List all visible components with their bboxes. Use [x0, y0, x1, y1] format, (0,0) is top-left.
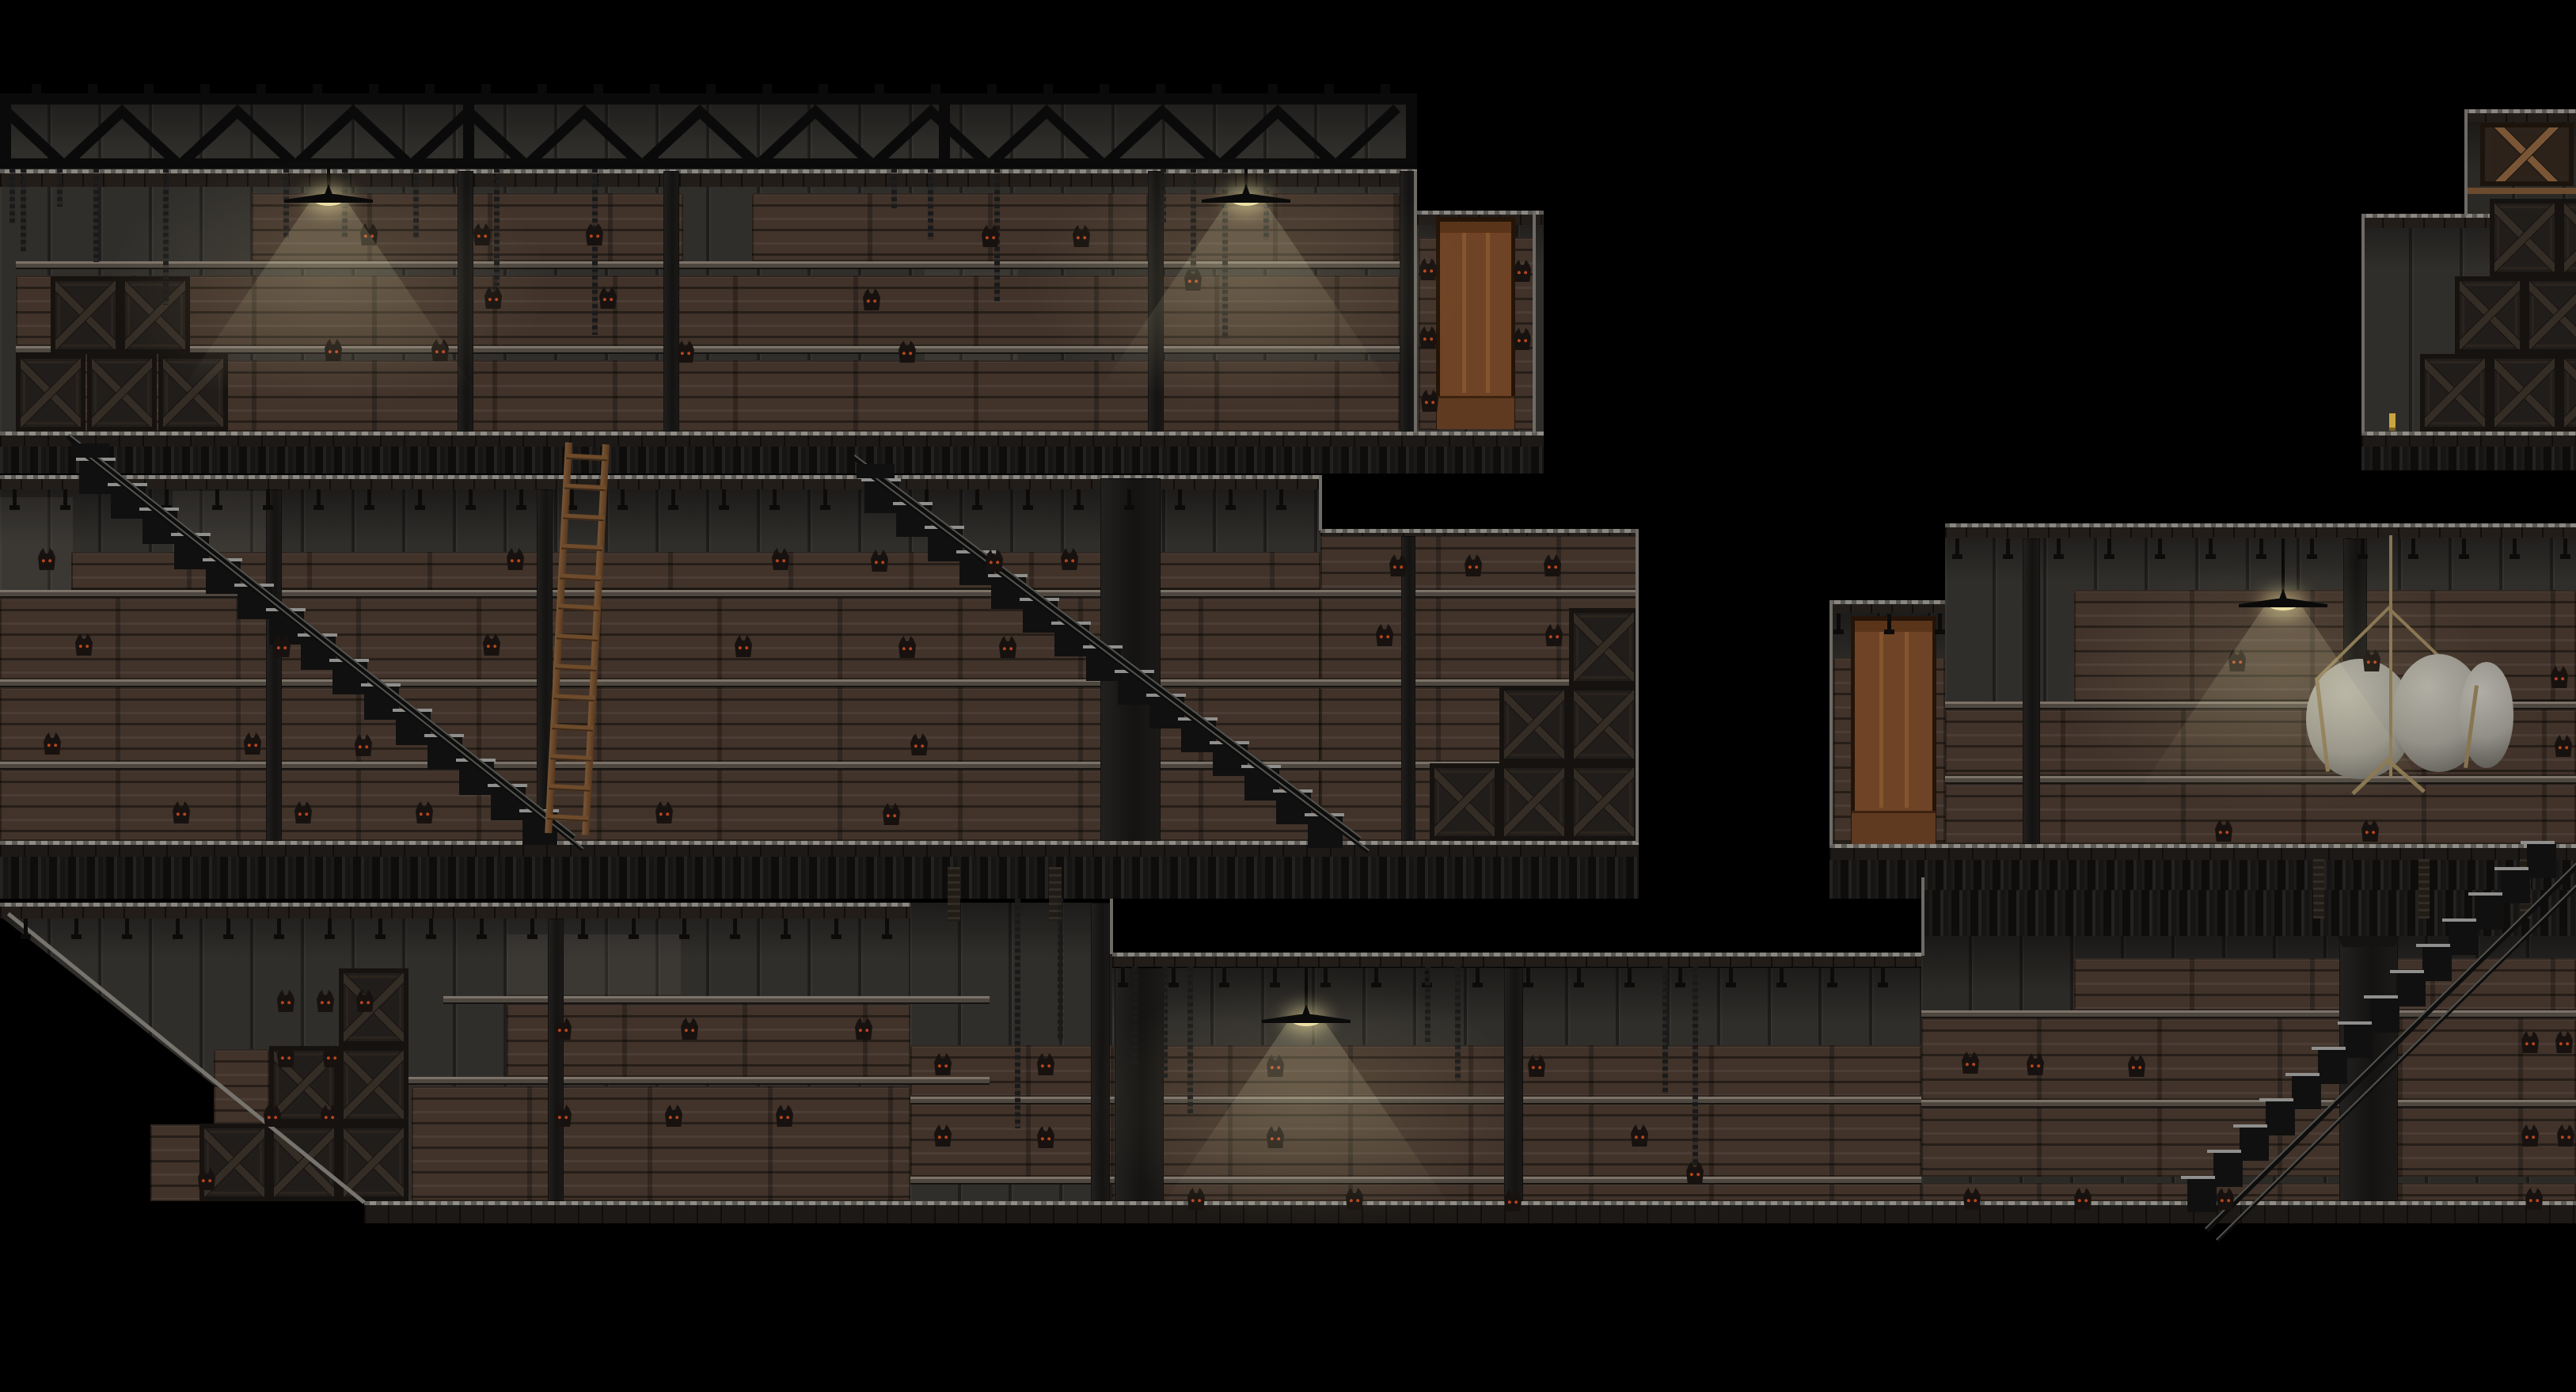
hanging-hook-icon: [1830, 967, 1834, 987]
door-divider: [1905, 632, 1909, 808]
hanging-hook-icon: [1178, 489, 1182, 510]
lamp-cord: [1305, 967, 1308, 1007]
ladder-rung: [553, 694, 595, 702]
stair-tread: [2233, 1124, 2267, 1128]
hanging-hook-icon: [682, 918, 686, 939]
truss-tab: [875, 84, 884, 93]
hanging-hook-icon: [2462, 538, 2466, 559]
stair-tread: [2312, 1047, 2346, 1050]
floor-platform: [2361, 432, 2576, 447]
hanging-hook-icon: [834, 918, 838, 939]
building-edge-trim: [1636, 529, 1639, 842]
truss-post: [1406, 93, 1417, 169]
hanging-chain: [1058, 899, 1063, 1041]
hanging-hook-icon: [74, 918, 78, 939]
hanging-hook-icon: [24, 918, 28, 939]
truss-tab: [256, 84, 266, 93]
support-pillar: [266, 489, 282, 841]
stair-tread: [2468, 892, 2502, 896]
truss-tab: [1381, 84, 1390, 93]
ladder-rung: [555, 664, 596, 671]
hanging-hook-icon: [165, 489, 169, 510]
support-pillar: [663, 171, 679, 432]
ladder-rung: [550, 754, 591, 762]
crate-stack-row: [1921, 1018, 2576, 1100]
hanging-hook-icon: [176, 918, 180, 939]
stair-tread: [2364, 995, 2398, 998]
lamp-cord: [2282, 538, 2285, 591]
hanging-chain: [1015, 899, 1020, 1128]
hanging-hook-icon: [632, 918, 636, 939]
wooden-crate: [2490, 354, 2559, 432]
hanging-hook-icon: [784, 918, 788, 939]
floor-platform: [1829, 844, 2576, 860]
truss-tab: [819, 84, 828, 93]
truss-tab: [1043, 84, 1053, 93]
hanging-hook-icon: [226, 918, 230, 939]
hanging-hook-icon: [1938, 614, 1942, 634]
support-pillar: [2023, 538, 2040, 844]
hanging-chain: [592, 169, 598, 335]
stair-tread: [2416, 944, 2450, 947]
floor-fascia: [0, 857, 1639, 899]
hanging-hook-icon: [277, 918, 281, 939]
hanging-hook-icon: [2006, 538, 2010, 559]
wooden-crate: [2455, 276, 2525, 354]
hanging-chain: [928, 169, 933, 240]
hanging-hook-icon: [1229, 489, 1233, 510]
truss-tab: [1268, 84, 1278, 93]
hanging-hook-icon: [2158, 538, 2162, 559]
hanging-hook-icon: [215, 489, 219, 510]
stair-tread: [2207, 1150, 2241, 1153]
hanging-hook-icon: [1476, 967, 1480, 987]
hanger-tab: [948, 867, 960, 921]
hanger-tab: [2313, 859, 2324, 918]
stair-tread: [2259, 1098, 2293, 1101]
building-edge-trim: [2464, 109, 2468, 215]
hanging-hook-icon: [63, 489, 67, 510]
stair-tread: [2285, 1073, 2320, 1076]
stair-riser: [2449, 922, 2478, 956]
stair-riser: [2292, 1076, 2321, 1110]
truss-tab: [313, 84, 322, 93]
truss-tab: [144, 84, 154, 93]
floor-fascia: [2361, 447, 2576, 470]
door-kickplate: [1437, 396, 1514, 429]
hanging-chain: [891, 169, 897, 208]
wall-light-panel: [507, 934, 681, 995]
stair-riser: [2187, 1179, 2217, 1213]
hanging-hook-icon: [2107, 538, 2111, 559]
stair-riser: [2240, 1128, 2269, 1162]
ceiling-planks: [1945, 523, 2576, 538]
hanging-hook-icon: [722, 489, 726, 510]
support-pillar: [548, 918, 564, 1201]
truss-tab: [32, 84, 41, 93]
truss-tab: [200, 84, 210, 93]
hanging-hook-icon: [1026, 489, 1030, 510]
hanging-hook-icon: [2563, 538, 2567, 559]
hanging-hook-icon: [621, 489, 625, 510]
building-edge-trim: [2361, 214, 2365, 433]
truss-tab: [594, 84, 603, 93]
door: [1851, 616, 1936, 844]
floor-platform: [0, 432, 1544, 447]
wooden-crate: [16, 354, 85, 432]
hanging-hook-icon: [480, 918, 484, 939]
building-edge-trim: [1319, 475, 1322, 531]
stair-riser: [2396, 973, 2426, 1007]
stair-riser: [2344, 1025, 2373, 1059]
stair-tread: [2390, 970, 2424, 973]
wooden-crate: [2480, 123, 2574, 186]
hanging-chain: [57, 169, 63, 207]
hanging-hook-icon: [530, 918, 534, 939]
stair-riser: [2318, 1050, 2347, 1084]
truss-tab: [1324, 84, 1334, 93]
ladder-rung: [547, 814, 588, 822]
hanging-hook-icon: [1577, 967, 1581, 987]
building-edge-trim: [1533, 211, 1536, 433]
hanging-hook-icon: [1837, 614, 1841, 634]
wooden-crate: [339, 1046, 408, 1124]
truss-tab: [88, 84, 97, 93]
floor-platform: [0, 841, 1639, 857]
ladder-rung: [549, 784, 590, 792]
hanging-hook-icon: [1780, 967, 1784, 987]
door-divider: [1879, 632, 1883, 808]
wooden-crate: [2525, 276, 2576, 354]
crate-stack-row: [2074, 958, 2576, 1010]
ladder-rung: [563, 514, 604, 522]
truss-tab: [987, 84, 997, 93]
hanging-hook-icon: [671, 489, 675, 510]
hanging-hook-icon: [823, 489, 827, 510]
crate-stack-row: [507, 1004, 910, 1077]
hanging-hook-icon: [1955, 538, 1959, 559]
stair-riser: [2501, 870, 2530, 904]
hanging-hook-icon: [1121, 967, 1125, 987]
crate-stack-row: [412, 1086, 910, 1201]
truss-tab: [425, 84, 435, 93]
hanging-hook-icon: [13, 489, 17, 510]
hanging-hook-icon: [317, 489, 321, 510]
ladder-rung: [560, 573, 601, 581]
ladder-rung: [558, 603, 599, 611]
stair-riser: [2213, 1153, 2243, 1187]
hanging-hook-icon: [519, 489, 523, 510]
hanging-hook-icon: [2209, 538, 2213, 559]
hanging-hook-icon: [1526, 967, 1530, 987]
stair-riser: [2527, 844, 2556, 878]
storage-shelf: [0, 762, 1639, 770]
candle-item: [2389, 413, 2396, 431]
storage-shelf: [364, 1077, 990, 1085]
wooden-crate: [2490, 199, 2559, 276]
hanging-hook-icon: [1628, 967, 1632, 987]
stair-top-bracket: [857, 464, 895, 478]
hanging-hook-icon: [2411, 538, 2415, 559]
hanging-chain: [1693, 967, 1698, 1165]
storage-shelf: [0, 679, 1639, 687]
wooden-crate: [1569, 608, 1639, 686]
hanging-hook-icon: [1127, 489, 1131, 510]
truss-tab: [1100, 84, 1109, 93]
stair-tread: [2181, 1176, 2215, 1179]
hanging-chain: [93, 169, 99, 262]
hanging-hook-icon: [469, 489, 473, 510]
stair-riser: [2422, 947, 2452, 981]
hanging-hook-icon: [1881, 967, 1885, 987]
wooden-crate: [1569, 763, 1639, 841]
ladder-rung: [561, 543, 602, 551]
truss-tab: [1156, 84, 1165, 93]
wooden-crate: [87, 354, 157, 432]
hanging-hook-icon: [733, 918, 737, 939]
support-pillar: [1401, 536, 1415, 841]
hanging-hook-icon: [418, 489, 422, 510]
wooden-crate: [339, 968, 408, 1046]
hanging-hook-icon: [2513, 538, 2517, 559]
hanging-hook-icon: [1678, 967, 1682, 987]
truss-tab: [762, 84, 772, 93]
hanging-hook-icon: [125, 918, 129, 939]
wooden-crate: [1499, 763, 1569, 841]
building-edge-trim: [1829, 600, 1833, 846]
hanging-hook-icon: [885, 918, 889, 939]
storage-shelf: [443, 996, 990, 1004]
ladder-rung: [564, 484, 606, 492]
stair-top-bracket: [71, 443, 109, 458]
hanging-hook-icon: [328, 918, 332, 939]
hanging-hook-icon: [429, 918, 433, 939]
truss-tab: [706, 84, 716, 93]
hanging-hook-icon: [1729, 967, 1733, 987]
building-edge-trim: [1921, 877, 1924, 956]
stair-tread: [2521, 841, 2555, 844]
truss-tab: [538, 84, 547, 93]
hanging-hook-icon: [2361, 538, 2365, 559]
wooden-crate: [2559, 354, 2576, 432]
hanger-tab: [2418, 859, 2430, 918]
truss-tab: [650, 84, 659, 93]
truss-tab: [481, 84, 491, 93]
door-kickplate: [1852, 811, 1936, 844]
wooden-crate: [2559, 199, 2576, 276]
hanging-hook-icon: [773, 489, 777, 510]
storage-shelf: [1921, 1100, 2576, 1108]
stair-tread: [2442, 918, 2476, 922]
hanging-hook-icon: [378, 918, 382, 939]
hanging-hook-icon: [1887, 614, 1891, 634]
hanging-hook-icon: [2310, 538, 2314, 559]
door-divider: [1486, 233, 1490, 393]
door-header: [1440, 222, 1511, 233]
hanging-hook-icon: [2259, 538, 2263, 559]
ladder-rung: [557, 633, 598, 641]
storage-shelf: [2464, 188, 2576, 194]
truss-tab: [369, 84, 378, 93]
wooden-crate: [2420, 354, 2490, 432]
stair-riser: [2370, 998, 2399, 1033]
ceiling-planks: [0, 903, 910, 918]
hanging-hook-icon: [1279, 489, 1283, 510]
hanging-chain: [1662, 967, 1668, 1093]
wooden-crate: [1430, 763, 1499, 841]
wooden-crate: [1569, 686, 1639, 763]
ceiling-planks: [1829, 600, 1945, 613]
ceiling-planks: [1112, 953, 1921, 967]
hanging-chain: [9, 169, 15, 224]
ladder-rung: [552, 724, 593, 732]
hanging-hook-icon: [975, 489, 979, 510]
ladder-rung: [566, 454, 607, 462]
hanging-hook-icon: [367, 489, 371, 510]
ceiling-planks: [2464, 109, 2576, 122]
truss-tab: [931, 84, 940, 93]
wooden-crate: [1499, 686, 1569, 763]
stair-riser: [2475, 896, 2504, 930]
stair-tread: [2494, 867, 2529, 870]
stair-tread: [2338, 1021, 2372, 1025]
hanging-chain: [21, 169, 26, 252]
hanging-hook-icon: [266, 489, 270, 510]
truss-top-chord: [0, 93, 1417, 105]
stair-riser: [2266, 1101, 2295, 1135]
storage-shelf: [1921, 1010, 2576, 1018]
building-edge-trim: [1110, 899, 1113, 954]
hanging-hook-icon: [2057, 538, 2061, 559]
hanging-hook-icon: [1172, 967, 1176, 987]
hanging-hook-icon: [581, 918, 585, 939]
game-viewport[interactable]: [0, 0, 2576, 1392]
floor-fascia: [0, 447, 1544, 474]
truss-tab: [1212, 84, 1222, 93]
hanging-hook-icon: [1077, 489, 1081, 510]
